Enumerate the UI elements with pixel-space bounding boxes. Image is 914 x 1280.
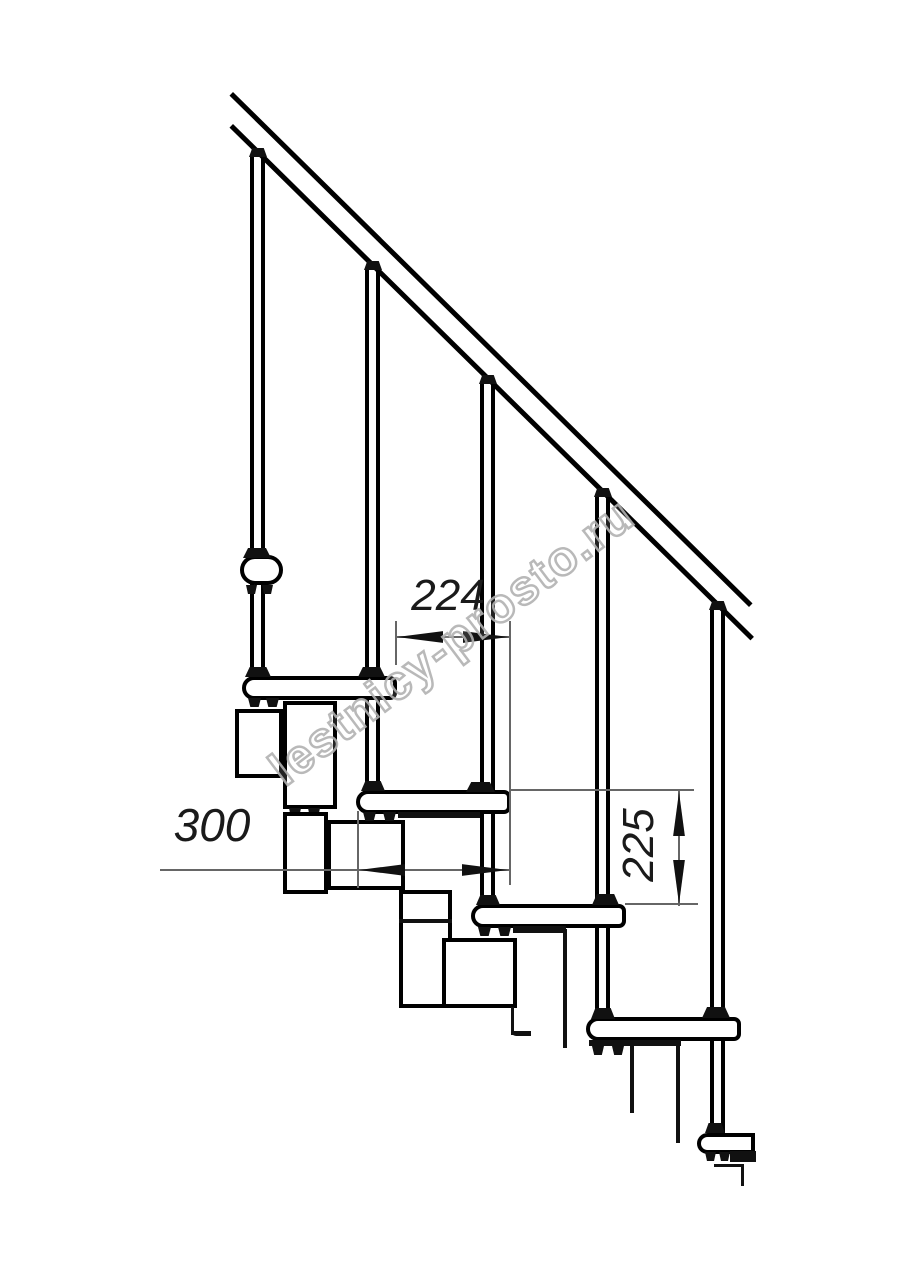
- dim-rise-arrow-down: [672, 860, 686, 904]
- tread-3: [471, 904, 626, 928]
- baluster-1: [250, 157, 265, 677]
- tread-3-underside-bar: [513, 926, 566, 933]
- staircase-technical-drawing: 224 300 225 lestnicy-prosto.ru: [0, 0, 914, 1280]
- tread-5-underside-bump: [705, 1152, 716, 1161]
- dim-tread-label: 300: [166, 802, 258, 848]
- dim-rise-arrow-up: [672, 792, 686, 836]
- tread-5-underside-bar: [730, 1151, 756, 1162]
- stringer-module-2-horizontal: [327, 820, 405, 890]
- stringer-cutoff-line: [630, 1045, 634, 1113]
- tread-3-underside-bump: [478, 927, 491, 936]
- stringer-cutoff-line: [563, 929, 567, 1048]
- baluster-5-collar: [702, 1007, 730, 1018]
- stringer-module-3-horizontal: [442, 938, 517, 1008]
- tread-4-underside-bar: [589, 1040, 681, 1046]
- stringer-cutoff-hook: [511, 1031, 531, 1036]
- tread-2: [356, 790, 511, 814]
- tread-2-underside-bar: [398, 812, 480, 818]
- site-watermark: lestnicy-prosto.ru: [259, 487, 645, 797]
- tread-4-underside-bump: [592, 1046, 604, 1055]
- tread-1-underside-bump: [266, 698, 279, 707]
- baluster-1-foot: [245, 667, 271, 677]
- dim-rise-label: 225: [617, 795, 661, 895]
- tread-5-cutoff-line-v: [741, 1164, 744, 1186]
- baluster-5: [710, 610, 725, 1134]
- stringer-cutoff-line: [676, 1042, 680, 1143]
- tread-upper-turn: [240, 555, 283, 585]
- baluster-1-collar: [243, 548, 271, 558]
- stringer-module-joint-line: [399, 919, 452, 923]
- tread-4: [586, 1017, 741, 1041]
- dim-shared-extension-right: [509, 621, 511, 885]
- dim-rise-extension-top: [511, 789, 694, 791]
- tread-1-underside-bump: [248, 698, 261, 707]
- tread-5-cutoff-line-h: [714, 1164, 744, 1167]
- tread-5-underside-bump: [719, 1152, 730, 1161]
- baluster-4: [595, 497, 610, 1019]
- tread-4-underside-bump: [612, 1046, 624, 1055]
- dim-tread-line: [160, 869, 511, 871]
- dim-tread-extension-left: [357, 811, 359, 888]
- stringer-module-2-vertical: [283, 812, 328, 894]
- dim-rise-extension-bottom: [625, 903, 698, 905]
- tread-3-underside-bump: [498, 927, 511, 936]
